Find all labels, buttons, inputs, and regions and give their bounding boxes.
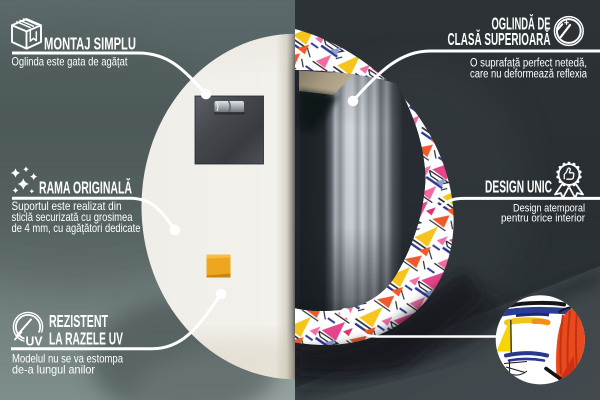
svg-text:CLASĂ SUPERIOARĂ: CLASĂ SUPERIOARĂ	[448, 28, 551, 49]
svg-text:Oglinda este gata de agățat: Oglinda este gata de agățat	[12, 55, 129, 69]
svg-text:de-a lungul anilor: de-a lungul anilor	[12, 363, 95, 377]
svg-text:RAMA ORIGINALĂ: RAMA ORIGINALĂ	[39, 177, 132, 198]
svg-text:care nu deformează reflexia: care nu deformează reflexia	[470, 69, 587, 81]
svg-text:MONTAJ SIMPLU: MONTAJ SIMPLU	[44, 34, 136, 54]
svg-text:LA RAZELE UV: LA RAZELE UV	[49, 329, 123, 349]
svg-text:DESIGN UNIC: DESIGN UNIC	[485, 177, 552, 197]
svg-text:UV: UV	[26, 334, 43, 349]
svg-text:de 4 mm, cu agățători dedicate: de 4 mm, cu agățători dedicate	[12, 221, 141, 235]
svg-text:pentru orice interior: pentru orice interior	[501, 213, 585, 225]
